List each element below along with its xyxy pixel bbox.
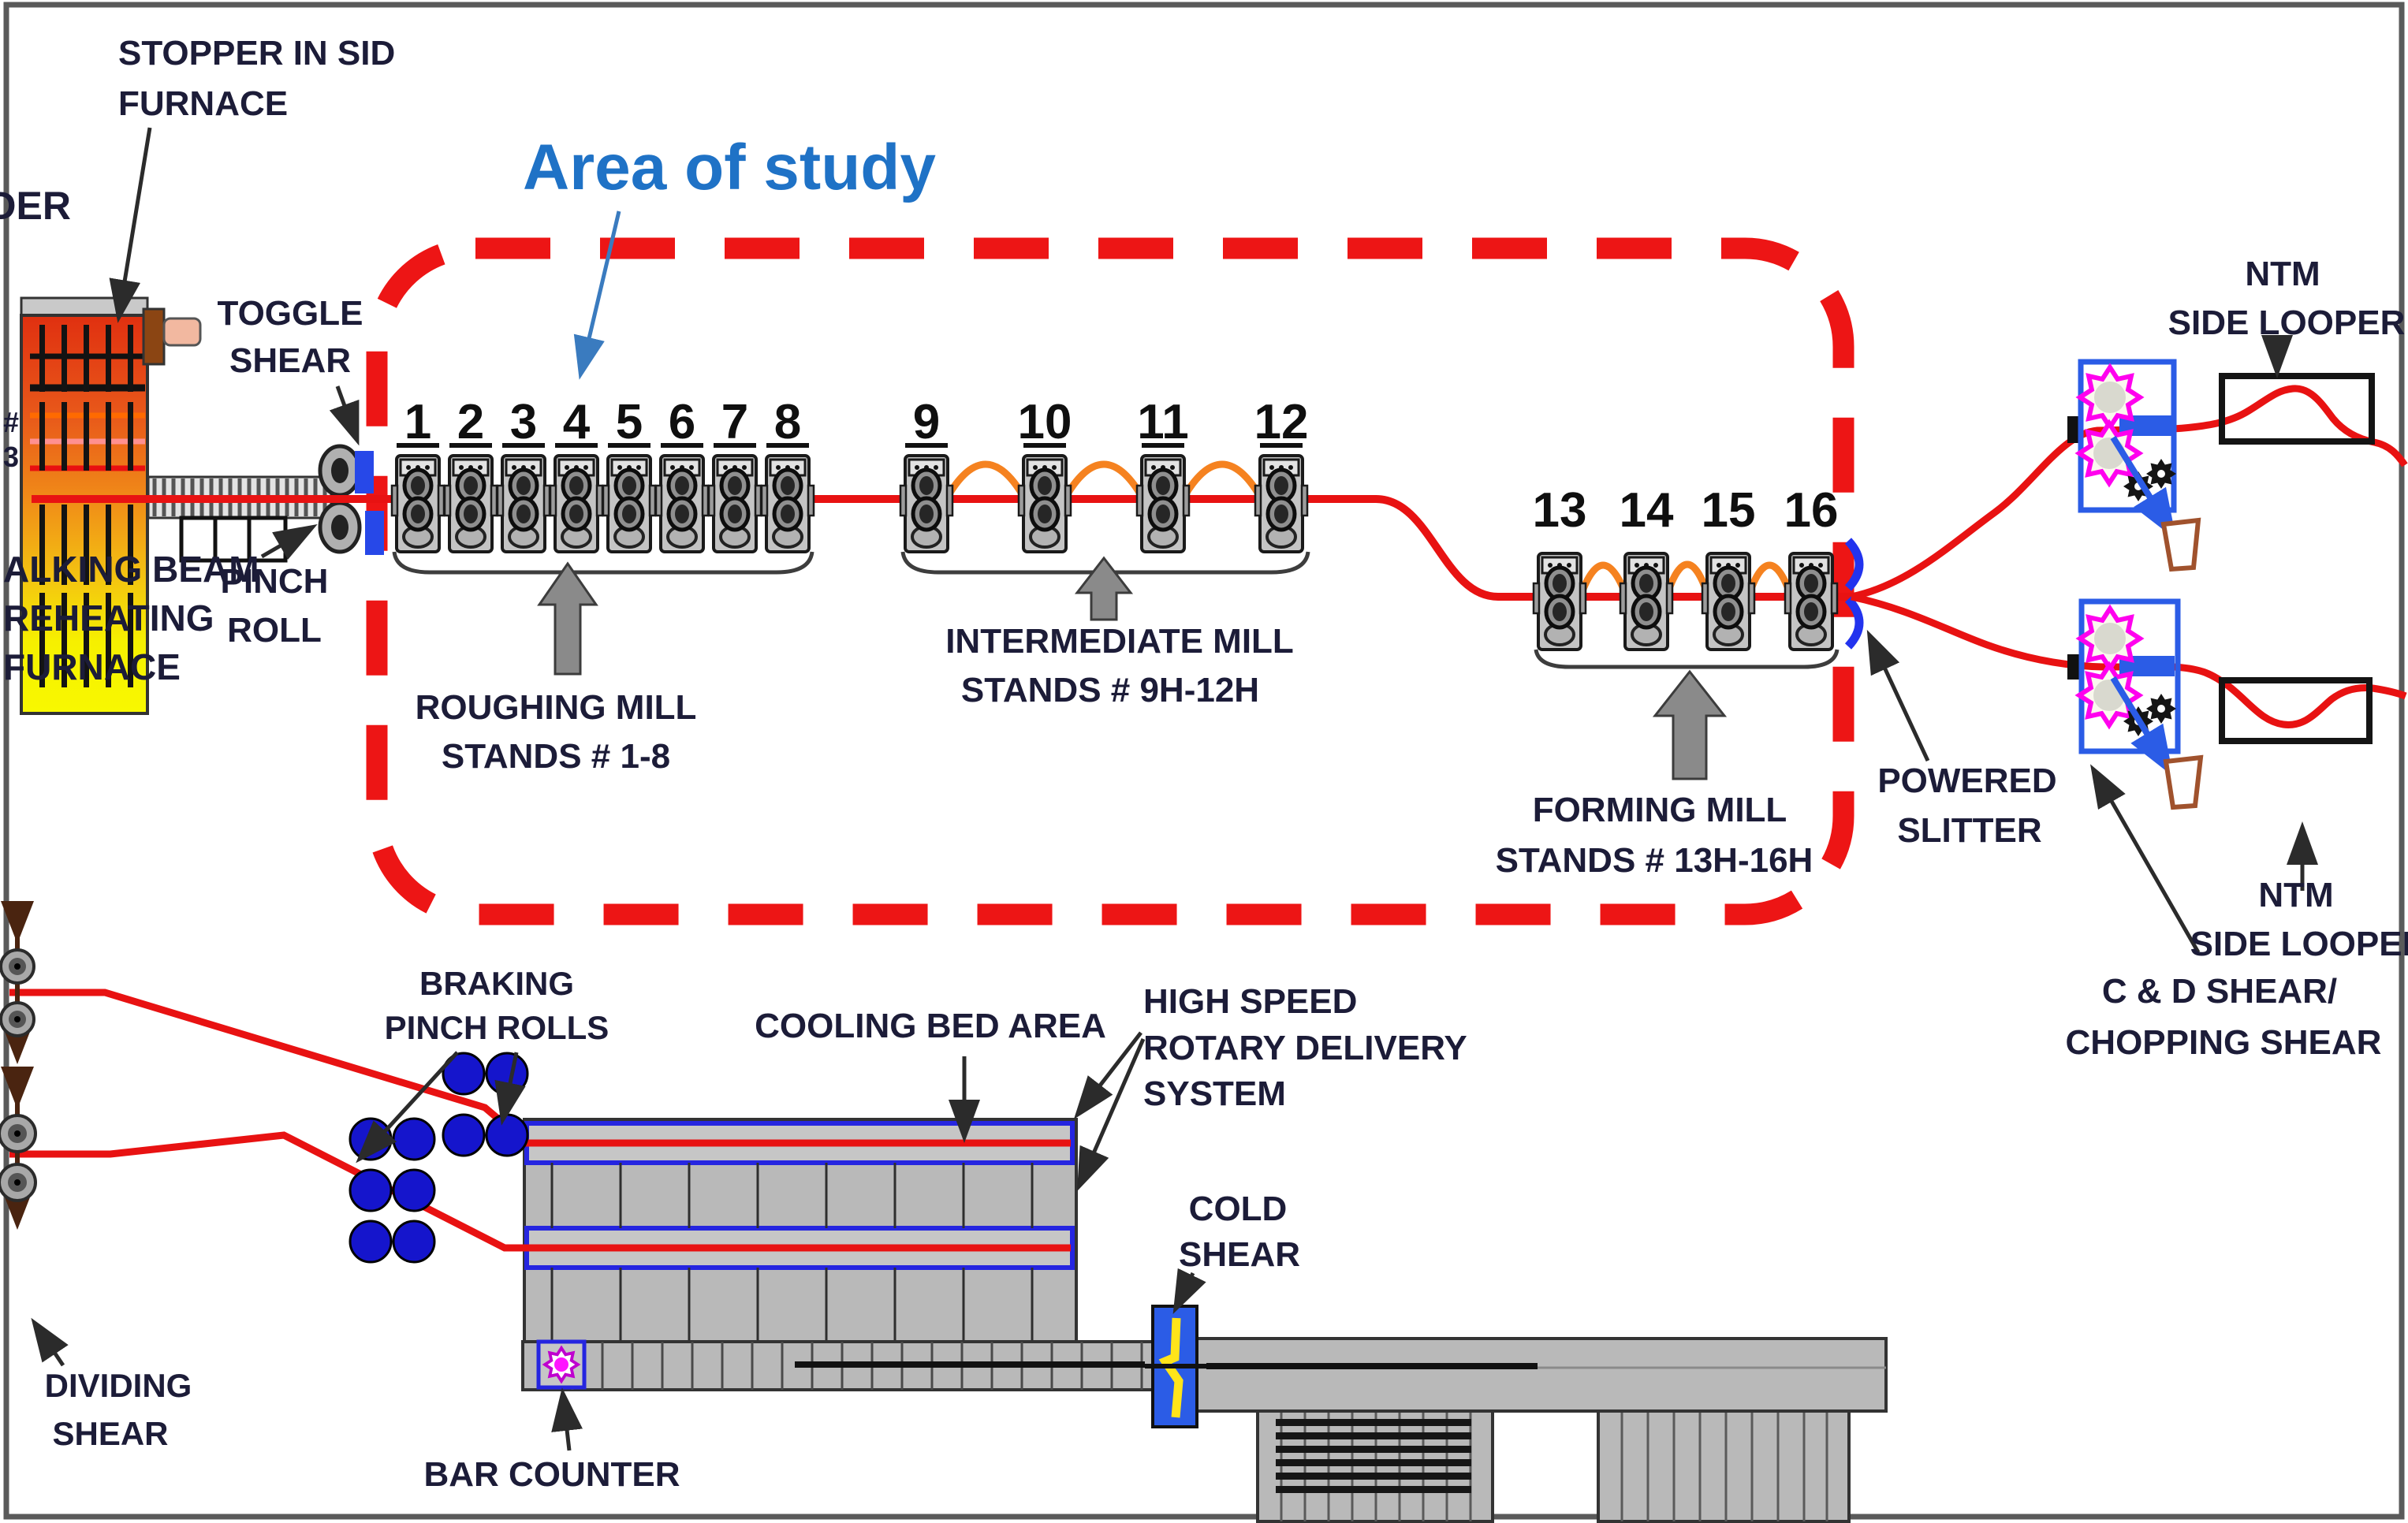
stand-number-1: 1 [404, 395, 431, 449]
scrap-bucket-icon [2164, 520, 2198, 569]
intermediate-mill-stands: 9 10 11 12 INTERMEDIATE MILL STANDS # 9H… [900, 395, 1308, 709]
scrap-bucket-icon [2166, 758, 2201, 807]
cooling-bed [524, 1119, 1076, 1342]
stand-number-4: 4 [563, 395, 591, 449]
label-toggle-line1: TOGGLE [218, 294, 363, 333]
stand-number-13: 13 [1533, 483, 1587, 538]
intermediate-label-line1: INTERMEDIATE MILL [945, 622, 1294, 661]
label-cd-line1: C & D SHEAR/ [2102, 972, 2337, 1011]
label-cold-line1: COLD [1189, 1190, 1288, 1228]
label-braking-line2: PINCH ROLLS [385, 1009, 609, 1046]
stand-number-7: 7 [721, 395, 748, 449]
forming-mill-stands: 13 14 15 16 FORMING MILL STANDS # 13H-16… [1496, 483, 1839, 880]
stand-number-8: 8 [774, 395, 801, 449]
bar-counter-arrow [563, 1395, 569, 1450]
label-pinch-line2: ROLL [227, 611, 322, 650]
area-of-study-title: Area of study [523, 132, 936, 203]
roughing-label-line1: ROUGHING MILL [416, 688, 697, 727]
cd-shear-upper [2067, 362, 2198, 569]
area-of-study-arrow [581, 211, 619, 372]
label-high-line3: SYSTEM [1143, 1074, 1286, 1113]
roughing-pointer-arrow [539, 564, 596, 674]
roughing-mill-stands: 1 2 3 4 5 6 7 8 ROUGHING MILL STANDS # 1… [392, 395, 814, 776]
stand-number-10: 10 [1018, 395, 1072, 449]
label-toggle-line2: SHEAR [229, 341, 351, 380]
stopper-arrow [119, 128, 150, 315]
dividing-shear-arrow [35, 1324, 63, 1365]
forming-pointer-arrow [1655, 672, 1724, 779]
label-powered-line1: POWERED [1877, 761, 2056, 800]
label-furnace-line3: FURNACE [3, 646, 181, 687]
label-edge-num: 3 [3, 441, 19, 473]
page-border [6, 5, 2402, 1517]
label-dividing-line2: SHEAR [52, 1415, 168, 1452]
label-ntm-bot-line1: NTM [2258, 876, 2333, 914]
cold-shear-arrow [1176, 1273, 1193, 1307]
label-ntm-top-line2: SIDE LOOPER [2168, 303, 2406, 342]
toggle-shear-arrow [337, 386, 356, 438]
sid-stopper-plug [164, 318, 200, 345]
label-braking-line1: BRAKING [419, 965, 574, 1002]
label-edge-hash: # [3, 406, 19, 438]
forming-label-line2: STANDS # 13H-16H [1496, 841, 1813, 880]
label-cold-line2: SHEAR [1179, 1235, 1300, 1274]
label-bar-counter: BAR COUNTER [423, 1455, 680, 1494]
braking-pinch-rolls [350, 1053, 527, 1262]
label-edge-fragment: WDER [0, 184, 71, 228]
scrap-chute-arrow [2113, 438, 2173, 534]
sid-stopper-block [144, 309, 164, 364]
stand-number-14: 14 [1620, 483, 1674, 538]
stand-number-5: 5 [616, 395, 643, 449]
label-ntm-bot-line2: SIDE LOOPER [2190, 925, 2408, 963]
stand-number-12: 12 [1254, 395, 1309, 449]
powered-slitter-arrow [1870, 637, 1928, 761]
stand-number-16: 16 [1784, 483, 1839, 538]
label-high-line2: ROTARY DELIVERY [1143, 1029, 1467, 1067]
label-dividing-line1: DIVIDING [45, 1367, 192, 1404]
runout-table [1197, 1339, 1886, 1411]
stand-number-2: 2 [457, 395, 484, 449]
forming-label-line1: FORMING MILL [1533, 791, 1787, 829]
label-cooling-bed: COOLING BED AREA [755, 1007, 1106, 1045]
rotary-arrow-2 [1080, 1039, 1143, 1184]
label-stopper-line2: FURNACE [118, 84, 288, 123]
label-high-line1: HIGH SPEED [1143, 982, 1357, 1021]
cd-shear-lower [2067, 601, 2201, 807]
intermediate-label-line2: STANDS # 9H-12H [961, 671, 1259, 709]
label-powered-line2: SLITTER [1897, 811, 2041, 850]
roughing-label-line2: STANDS # 1-8 [442, 737, 670, 776]
stand-number-15: 15 [1702, 483, 1756, 538]
intermediate-pointer-arrow [1077, 558, 1131, 620]
cold-shear [1145, 1306, 1206, 1427]
mill-layout-diagram: 1 2 3 4 5 6 7 8 ROUGHING MILL STANDS # 1… [0, 0, 2408, 1523]
stand-number-3: 3 [510, 395, 537, 449]
stand-number-9: 9 [913, 395, 940, 449]
label-stopper-line1: STOPPER IN SID [118, 34, 395, 73]
scrap-chute-arrow [2113, 678, 2170, 771]
stand-number-11: 11 [1137, 395, 1189, 449]
bar-counter [539, 1342, 584, 1387]
stand-number-6: 6 [669, 395, 695, 449]
label-ntm-top-line1: NTM [2245, 255, 2320, 293]
label-furnace-line2: REHEATING [3, 598, 214, 639]
label-cd-line2: CHOPPING SHEAR [2066, 1023, 2382, 1062]
label-furnace-line1: ALKING BEAM [3, 549, 259, 590]
